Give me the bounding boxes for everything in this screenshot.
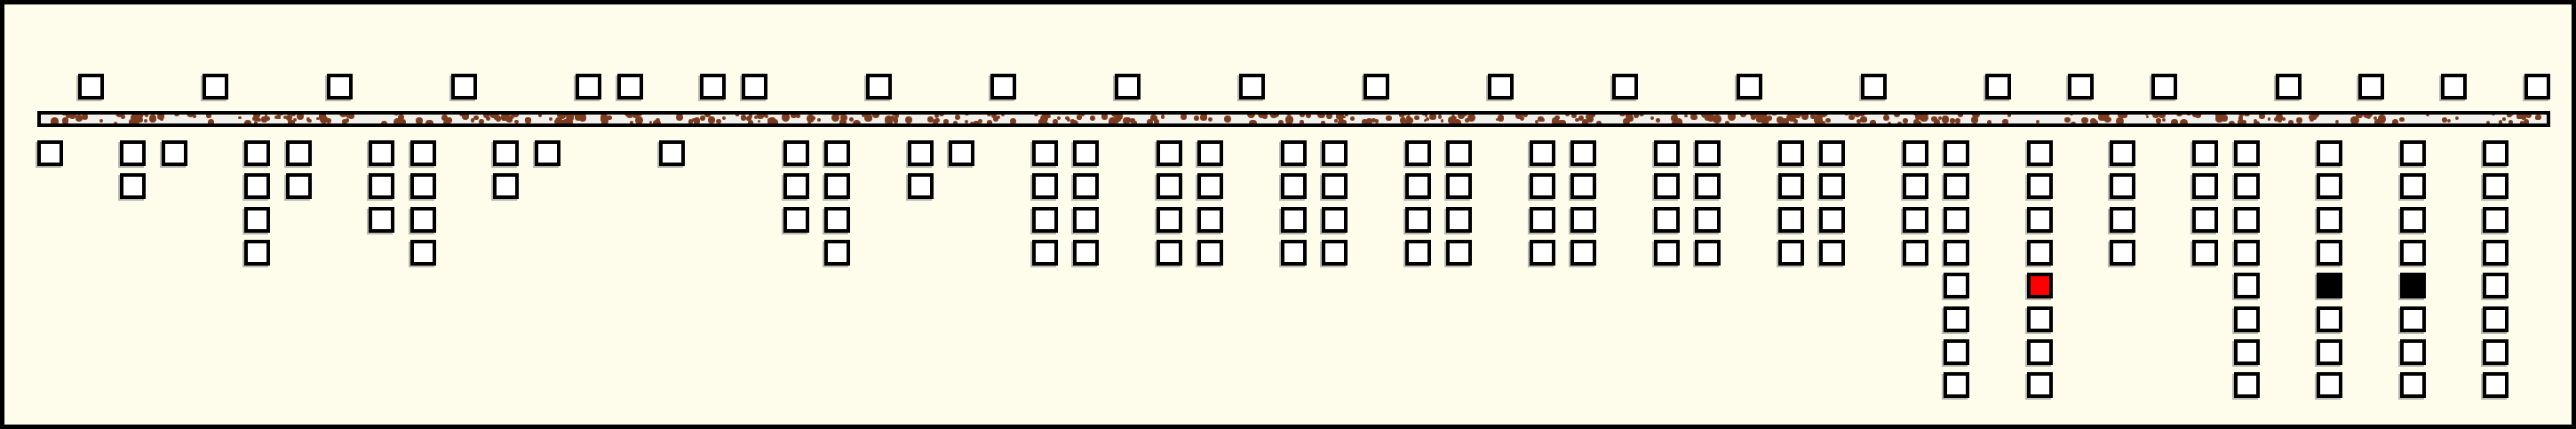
soil-speckle	[2335, 120, 2339, 123]
underground-square	[1197, 240, 1223, 266]
soil-speckle	[397, 120, 404, 126]
underground-square	[1778, 240, 1804, 266]
soil-speckle	[1535, 120, 1538, 123]
soil-speckle	[1194, 115, 1199, 121]
soil-speckle	[1634, 113, 1639, 118]
soil-speckle	[1362, 119, 1368, 125]
soil-speckle	[1090, 115, 1096, 122]
soil-speckle	[765, 115, 768, 118]
soil-speckle	[2499, 120, 2502, 123]
surface-square	[1239, 74, 1265, 99]
soil-speckle	[2036, 120, 2039, 123]
surface-square	[1737, 74, 1762, 99]
underground-square	[1197, 140, 1223, 166]
soil-speckle	[1068, 111, 1071, 115]
soil-speckle	[2215, 115, 2223, 123]
underground-square	[1570, 173, 1596, 199]
soil-speckle	[149, 115, 157, 123]
soil-speckle	[290, 121, 295, 125]
soil-speckle	[137, 117, 142, 123]
soil-speckle	[1448, 116, 1456, 124]
soil-speckle	[238, 116, 242, 120]
soil-speckle	[849, 117, 854, 122]
soil-speckle	[525, 117, 530, 123]
soil-speckle	[1558, 120, 1562, 123]
soil-speckle	[2282, 117, 2286, 121]
underground-square	[2483, 207, 2508, 233]
underground-square	[1778, 173, 1804, 199]
underground-square	[1032, 140, 1058, 166]
surface-square	[1488, 74, 1514, 99]
underground-square	[1944, 207, 1969, 233]
soil-speckle	[627, 114, 631, 117]
soil-speckle	[1897, 122, 1901, 125]
soil-speckle	[1955, 118, 1960, 123]
soil-speckle	[2008, 113, 2012, 117]
soil-speckle	[1306, 113, 1311, 118]
soil-speckle	[708, 116, 715, 123]
soil-speckle	[2508, 120, 2513, 124]
underground-square	[949, 140, 974, 166]
underground-square	[1446, 140, 1472, 166]
soil-speckle	[2502, 117, 2506, 121]
soil-speckle	[1053, 119, 1058, 124]
soil-speckle	[1338, 119, 1346, 127]
soil-speckle	[1958, 112, 1963, 117]
surface-square	[990, 74, 1016, 99]
soil-speckle	[782, 113, 790, 121]
underground-square-black	[2400, 273, 2426, 298]
soil-speckle	[1462, 111, 1467, 116]
underground-square	[1654, 173, 1680, 199]
soil-speckle	[1010, 118, 1016, 124]
soil-speckle	[2268, 117, 2270, 120]
soil-speckle	[1690, 114, 1697, 120]
soil-speckle	[144, 119, 147, 123]
surface-square	[617, 74, 643, 99]
soil-speckle	[2520, 121, 2524, 125]
soil-speckle	[2310, 116, 2314, 121]
underground-square	[2400, 140, 2426, 166]
underground-square	[2400, 372, 2426, 398]
soil-speckle	[2492, 112, 2496, 116]
underground-square	[2027, 339, 2053, 365]
underground-square	[410, 140, 436, 166]
soil-speckle	[579, 114, 586, 121]
soil-speckle	[600, 115, 608, 123]
soil-speckle	[1590, 112, 1595, 117]
underground-square	[2027, 140, 2053, 166]
soil-speckle	[955, 115, 961, 121]
soil-speckle	[1725, 121, 1729, 125]
underground-square	[410, 173, 436, 199]
underground-square	[1322, 140, 1348, 166]
underground-square	[1073, 173, 1099, 199]
soil-speckle	[978, 119, 982, 123]
underground-square	[493, 140, 519, 166]
underground-square	[1446, 240, 1472, 266]
soil-speckle	[1728, 112, 1736, 120]
soil-speckle	[2486, 121, 2491, 125]
soil-speckle	[486, 116, 490, 121]
soil-speckle	[1278, 120, 1284, 125]
soil-speckle	[1759, 116, 1765, 123]
underground-square	[1073, 207, 1099, 233]
underground-square	[244, 240, 270, 266]
soil-speckle	[274, 115, 278, 119]
soil-speckle	[1285, 115, 1293, 123]
underground-square	[2110, 240, 2135, 266]
underground-square	[1944, 339, 1969, 365]
underground-square	[1903, 173, 1928, 199]
underground-square	[1530, 240, 1555, 266]
underground-square	[2483, 240, 2508, 266]
surface-square	[1861, 74, 1887, 99]
soil-speckle	[953, 121, 958, 126]
soil-speckle	[1656, 118, 1660, 123]
underground-square	[2400, 173, 2426, 199]
surface-square	[451, 74, 477, 99]
soil-speckle	[1375, 119, 1379, 123]
surface-square	[2441, 74, 2467, 99]
soil-speckle	[1971, 116, 1978, 123]
soil-speckle	[2162, 118, 2166, 122]
underground-square	[2483, 339, 2508, 365]
soil-speckle	[1426, 117, 1429, 121]
underground-square	[2192, 207, 2218, 233]
underground-square	[2400, 207, 2426, 233]
underground-square	[1157, 207, 1182, 233]
underground-square	[783, 140, 809, 166]
underground-square	[2234, 372, 2260, 398]
surface-square	[2151, 74, 2177, 99]
soil-speckle	[2399, 117, 2405, 123]
underground-square	[369, 173, 394, 199]
underground-square	[2317, 173, 2342, 199]
soil-speckle	[2426, 112, 2429, 115]
underground-square	[2027, 207, 2053, 233]
underground-square	[1903, 240, 1928, 266]
soil-speckle	[2254, 119, 2257, 123]
underground-square	[2234, 173, 2260, 199]
soil-speckle	[905, 116, 912, 123]
soil-speckle	[129, 119, 135, 125]
soil-speckle	[206, 113, 211, 118]
soil-speckle	[2507, 112, 2512, 117]
simulation-canvas	[0, 0, 2576, 429]
soil-speckle	[2180, 119, 2188, 127]
soil-speckle	[1345, 113, 1348, 116]
soil-speckle	[1081, 113, 1085, 116]
soil-speckle	[1405, 120, 1410, 124]
underground-square	[1281, 173, 1307, 199]
underground-square	[1157, 240, 1182, 266]
soil-speckle	[927, 116, 934, 123]
soil-speckle	[853, 120, 861, 127]
underground-square	[1903, 140, 1928, 166]
underground-square	[1570, 207, 1596, 233]
soil-speckle	[1438, 115, 1442, 118]
soil-speckle	[549, 117, 553, 121]
soil-speckle	[1571, 113, 1577, 118]
underground-square	[1322, 207, 1348, 233]
underground-square	[659, 140, 685, 166]
underground-square	[410, 240, 436, 266]
soil-speckle	[1161, 115, 1165, 119]
underground-square	[1157, 173, 1182, 199]
soil-speckle	[1336, 113, 1344, 121]
underground-square	[2192, 173, 2218, 199]
underground-square	[1944, 306, 1969, 332]
soil-speckle	[965, 112, 969, 116]
underground-square	[1944, 173, 1969, 199]
underground-square	[1570, 140, 1596, 166]
underground-square	[1778, 140, 1804, 166]
soil-speckle	[2195, 112, 2201, 118]
underground-square-black	[2317, 273, 2342, 298]
underground-square	[1570, 240, 1596, 266]
soil-speckle	[1650, 116, 1654, 120]
soil-speckle	[1300, 120, 1303, 123]
soil-speckle	[2146, 115, 2149, 118]
soil-speckle	[82, 114, 88, 120]
underground-square	[2400, 306, 2426, 332]
underground-square	[244, 173, 270, 199]
soil-speckle	[554, 120, 558, 123]
soil-speckle	[2521, 114, 2526, 119]
soil-speckle	[1816, 116, 1819, 120]
soil-speckle	[538, 114, 542, 117]
underground-square	[1530, 173, 1555, 199]
underground-square	[2234, 339, 2260, 365]
soil-speckle	[2156, 118, 2161, 123]
underground-square	[1281, 207, 1307, 233]
soil-speckle	[1515, 112, 1523, 119]
soil-speckle	[1674, 111, 1679, 115]
soil-speckle	[2242, 120, 2246, 124]
underground-square	[1032, 173, 1058, 199]
soil-speckle	[692, 118, 696, 122]
underground-square	[1695, 240, 1721, 266]
surface-square	[2276, 74, 2302, 99]
soil-speckle	[1888, 122, 1891, 125]
soil-speckle	[2392, 119, 2398, 125]
soil-speckle	[1916, 121, 1921, 126]
soil-speckle	[2124, 114, 2127, 116]
soil-speckle	[425, 120, 433, 127]
underground-square	[1819, 207, 1845, 233]
underground-square	[1819, 240, 1845, 266]
underground-square	[2110, 140, 2135, 166]
underground-square	[369, 140, 394, 166]
soil-speckle	[1987, 120, 1992, 125]
soil-speckle	[1262, 114, 1268, 119]
underground-square	[2234, 273, 2260, 298]
soil-speckle	[381, 121, 387, 127]
underground-square	[2027, 173, 2053, 199]
soil-speckle	[2278, 118, 2282, 123]
soil-speckle	[1883, 115, 1889, 121]
soil-speckle	[473, 115, 479, 121]
soil-speckle	[1208, 117, 1212, 122]
underground-square	[1695, 173, 1721, 199]
soil-speckle	[757, 112, 764, 119]
underground-square	[1197, 207, 1223, 233]
soil-speckle	[208, 119, 214, 125]
soil-speckle	[459, 111, 465, 116]
underground-square	[2317, 306, 2342, 332]
soil-speckle	[1154, 119, 1159, 124]
soil-speckle	[1639, 111, 1644, 116]
soil-speckle	[1057, 116, 1061, 121]
soil-speckle	[1582, 119, 1588, 125]
soil-speckle	[193, 115, 196, 118]
soil-speckle	[997, 115, 1000, 119]
underground-square	[1157, 140, 1182, 166]
soil-speckle	[748, 120, 753, 125]
underground-square	[1530, 207, 1555, 233]
underground-square	[2400, 240, 2426, 266]
soil-speckle	[557, 113, 561, 116]
soil-speckle	[939, 111, 944, 116]
underground-square	[2234, 240, 2260, 266]
soil-speckle	[562, 122, 566, 125]
soil-speckle	[63, 118, 68, 123]
soil-speckle	[306, 111, 310, 115]
soil-speckle	[1626, 112, 1633, 119]
soil-speckle	[1321, 121, 1324, 124]
surface-square	[866, 74, 892, 99]
underground-square	[1073, 140, 1099, 166]
soil-speckle	[1247, 111, 1255, 118]
soil-speckle	[254, 121, 258, 124]
underground-square	[1446, 173, 1472, 199]
underground-square	[2192, 140, 2218, 166]
soil-speckle	[1815, 122, 1819, 126]
soil-speckle	[2098, 114, 2105, 121]
soil-speckle	[747, 115, 751, 120]
surface-square	[2358, 74, 2384, 99]
underground-square	[2317, 372, 2342, 398]
underground-square	[1530, 140, 1555, 166]
underground-square	[1778, 207, 1804, 233]
soil-speckle	[987, 120, 992, 125]
soil-speckle	[1575, 118, 1579, 123]
soil-speckle	[2447, 119, 2451, 123]
soil-speckle	[471, 118, 475, 123]
underground-square	[2110, 207, 2135, 233]
surface-square	[576, 74, 601, 99]
underground-square	[1405, 207, 1431, 233]
underground-square	[2027, 372, 2053, 398]
underground-square	[2483, 273, 2508, 298]
underground-square	[1944, 140, 1969, 166]
underground-square	[2317, 240, 2342, 266]
underground-square	[286, 173, 312, 199]
underground-square	[783, 173, 809, 199]
soil-speckle	[1130, 112, 1133, 115]
soil-speckle	[1224, 115, 1231, 123]
soil-speckle	[1317, 111, 1324, 118]
soil-speckle	[1113, 117, 1119, 123]
soil-speckle	[2002, 119, 2008, 124]
soil-speckle	[2288, 120, 2294, 125]
soil-speckle	[943, 119, 949, 124]
underground-square	[2483, 372, 2508, 398]
soil-speckle	[2070, 111, 2074, 115]
soil-speckle	[2229, 121, 2235, 127]
underground-square	[1819, 140, 1845, 166]
underground-square	[1695, 207, 1721, 233]
soil-speckle	[99, 119, 103, 123]
soil-speckle	[1441, 119, 1443, 122]
underground-square	[120, 173, 146, 199]
underground-square	[2110, 173, 2135, 199]
soil-speckle	[2071, 122, 2075, 126]
underground-square	[1322, 240, 1348, 266]
soil-speckle	[1787, 113, 1795, 121]
soil-speckle	[1596, 121, 1601, 125]
soil-speckle	[1771, 111, 1777, 115]
soil-speckle	[758, 120, 760, 123]
soil-speckle	[1903, 118, 1908, 123]
underground-square	[1032, 207, 1058, 233]
soil-speckle	[253, 111, 260, 118]
soil-speckle	[568, 115, 575, 121]
underground-square	[1654, 240, 1680, 266]
underground-square	[1695, 140, 1721, 166]
soil-speckle	[1041, 119, 1046, 124]
surface-square	[78, 74, 104, 99]
underground-square	[783, 207, 809, 233]
soil-speckle	[320, 115, 327, 123]
surface-square	[700, 74, 726, 99]
underground-square	[1944, 240, 1969, 266]
underground-square	[908, 173, 934, 199]
soil-speckle	[1856, 119, 1861, 123]
surface-square	[1985, 74, 2011, 99]
soil-speckle	[839, 119, 846, 125]
soil-speckle	[676, 114, 683, 121]
soil-speckle	[1429, 114, 1436, 121]
underground-square	[2317, 207, 2342, 233]
underground-square	[162, 140, 187, 166]
soil-speckle	[2081, 117, 2087, 123]
surface-square	[1612, 74, 1638, 99]
underground-square	[244, 140, 270, 166]
underground-square	[244, 207, 270, 233]
soil-speckle	[741, 115, 746, 120]
soil-speckle	[416, 117, 423, 124]
surface-square	[2524, 74, 2550, 99]
soil-speckle	[735, 114, 739, 117]
soil-speckle	[1523, 112, 1528, 117]
soil-speckle	[722, 116, 726, 120]
soil-speckle	[656, 118, 660, 123]
underground-square	[824, 240, 850, 266]
soil-speckle	[796, 114, 800, 118]
underground-square	[2317, 140, 2342, 166]
soil-speckle	[934, 118, 939, 123]
soil-speckle	[2259, 114, 2265, 120]
underground-square	[369, 207, 394, 233]
soil-speckle	[1425, 114, 1428, 117]
soil-speckle	[1101, 113, 1108, 119]
underground-square	[1281, 240, 1307, 266]
soil-speckle	[2535, 115, 2540, 120]
surface-square	[2068, 74, 2094, 99]
soil-speckle	[2455, 116, 2460, 121]
